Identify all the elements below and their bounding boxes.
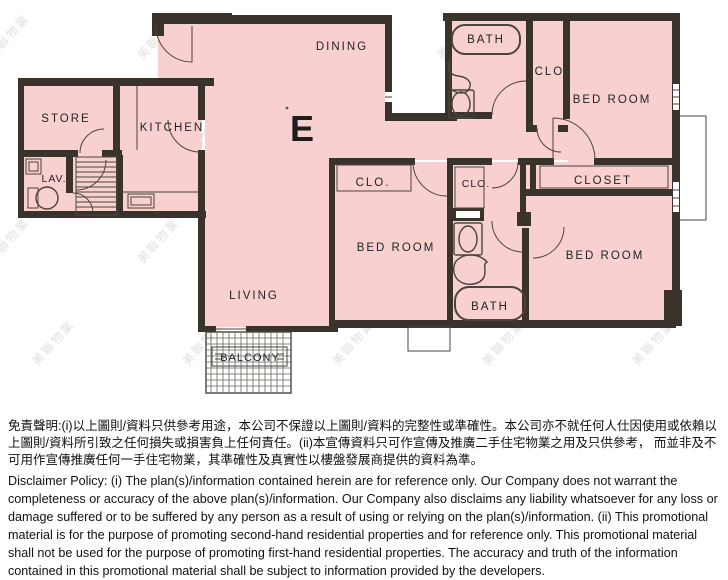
plan-dot [286, 107, 289, 110]
room-label-balcony: BALCONY [220, 352, 280, 364]
room-label-lav: LAV. [41, 173, 66, 185]
room-label-living: LIVING [229, 290, 279, 302]
disclaimer-chinese: 免責聲明:(i)以上圖則/資料只供參考用途，本公司不保證以上圖則/資料的完整性或… [8, 418, 722, 469]
room-label-clo-mid: CLO. [462, 178, 491, 190]
room-label-bedroom-top: BED ROOM [573, 94, 652, 106]
room-label-clo-top: CLO. [535, 66, 570, 78]
room-label-clo-left: CLO. [356, 177, 391, 189]
disclaimer-english: Disclaimer Policy: (i) The plan(s)/infor… [8, 472, 722, 580]
room-label-bath-bottom: BATH [471, 301, 509, 313]
disclaimer-block: 免責聲明:(i)以上圖則/資料只供參考用途，本公司不保證以上圖則/資料的完整性或… [8, 418, 722, 580]
floor-plan: STORE KITCHEN LAV. DINING E BATH CLO. BE… [0, 0, 728, 412]
external-ledge-outline [680, 116, 706, 220]
room-label-bedroom-bottom: BED ROOM [566, 250, 645, 262]
room-label-kitchen: KITCHEN [140, 122, 204, 134]
room-label-closet: CLOSET [574, 175, 632, 187]
room-label-bath-top: BATH [467, 34, 505, 46]
room-label-bedroom-mid: BED ROOM [357, 242, 436, 254]
unit-label: E [290, 108, 314, 149]
floor-plan-page: 美聯物業美聯物業美聯物業美聯物業美聯物業美聯物業美聯物業美聯物業美聯物業美聯物業… [0, 0, 728, 580]
service-box [408, 327, 450, 351]
floor-plan-drawing: STORE KITCHEN LAV. DINING E BATH CLO. BE… [0, 0, 728, 412]
area-bedroom-top [568, 18, 676, 162]
room-label-store: STORE [41, 113, 90, 125]
room-label-dining: DINING [316, 41, 368, 53]
